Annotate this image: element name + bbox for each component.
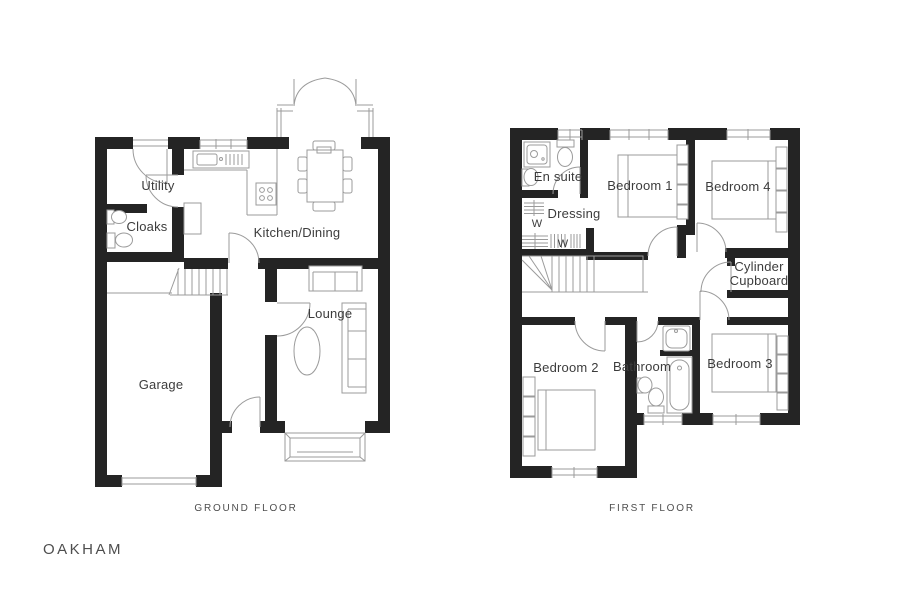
room-label-dressing: Dressing [548,206,601,221]
first-floor-caption: FIRST FLOOR [609,503,695,514]
bedroom3-bed-icon [712,334,788,410]
bedroom1-window [610,129,668,140]
room-label-bathroom: Bathroom [613,359,671,374]
ground-floor-caption: GROUND FLOOR [194,503,297,514]
wardrobe-label-2: W [558,238,569,250]
ensuite-toilet-icon [557,140,574,167]
bathroom-window [644,414,682,425]
cloaks-basin-icon [107,210,127,224]
kitchen-window [200,139,247,149]
french-doors-bay [277,78,373,137]
bedroom2-bed-icon [523,377,595,456]
bedroom1-door [648,227,677,256]
front-door [230,397,260,427]
first-floor-plan: En suite Dressing Bedroom 1 Bedroom 4 Cy… [500,115,812,495]
utility-back-door [133,140,168,183]
development-title: OAKHAM [43,541,123,558]
vanity-basin-icon [663,326,690,351]
bathroom-toilet-icon [648,388,664,413]
room-label-bedroom-2: Bedroom 2 [533,360,598,375]
bedroom2-door [575,321,605,351]
ensuite-window [558,129,582,140]
floorplan-canvas: Utility Cloaks Kitchen/Dining Lounge Gar… [0,0,900,600]
hob-icon [256,183,276,205]
bedroom3-door [700,291,729,320]
bedroom4-window [727,129,770,140]
room-label-kitchen-dining: Kitchen/Dining [254,225,341,240]
shower-icon [524,142,550,167]
garage-door [122,477,196,486]
bathroom-basin-icon [637,377,652,393]
dining-table-icon [298,141,352,211]
room-label-cylinder-cupboard-line1: Cylinder [734,259,784,274]
room-label-en-suite: En suite [534,169,583,184]
bedroom4-door [697,223,726,252]
cloaks-toilet-icon [107,233,133,248]
bedroom3-window [713,414,760,425]
bedroom2-window [552,467,597,478]
bathroom-door [637,321,658,342]
room-label-bedroom-4: Bedroom 4 [705,179,770,194]
room-label-bedroom-1: Bedroom 1 [607,178,672,193]
stairs-icon [522,256,648,292]
wardrobe-label-1: W [532,218,543,230]
ground-floor-plan: Utility Cloaks Kitchen/Dining Lounge Gar… [85,60,405,510]
room-label-bedroom-3: Bedroom 3 [707,356,772,371]
room-label-cloaks: Cloaks [127,219,168,234]
kitchen-sink-icon [193,151,249,168]
sofa-icon [309,266,362,291]
room-label-utility: Utility [141,178,174,193]
lounge-bay-window [285,433,365,461]
room-label-cylinder-cupboard-line2: Cupboard [730,273,789,288]
room-label-lounge: Lounge [308,306,353,321]
cylinder-cupboard-door [701,262,731,292]
stairs-icon [107,268,228,295]
coffee-table-icon [294,327,320,375]
room-label-garage: Garage [139,377,184,392]
